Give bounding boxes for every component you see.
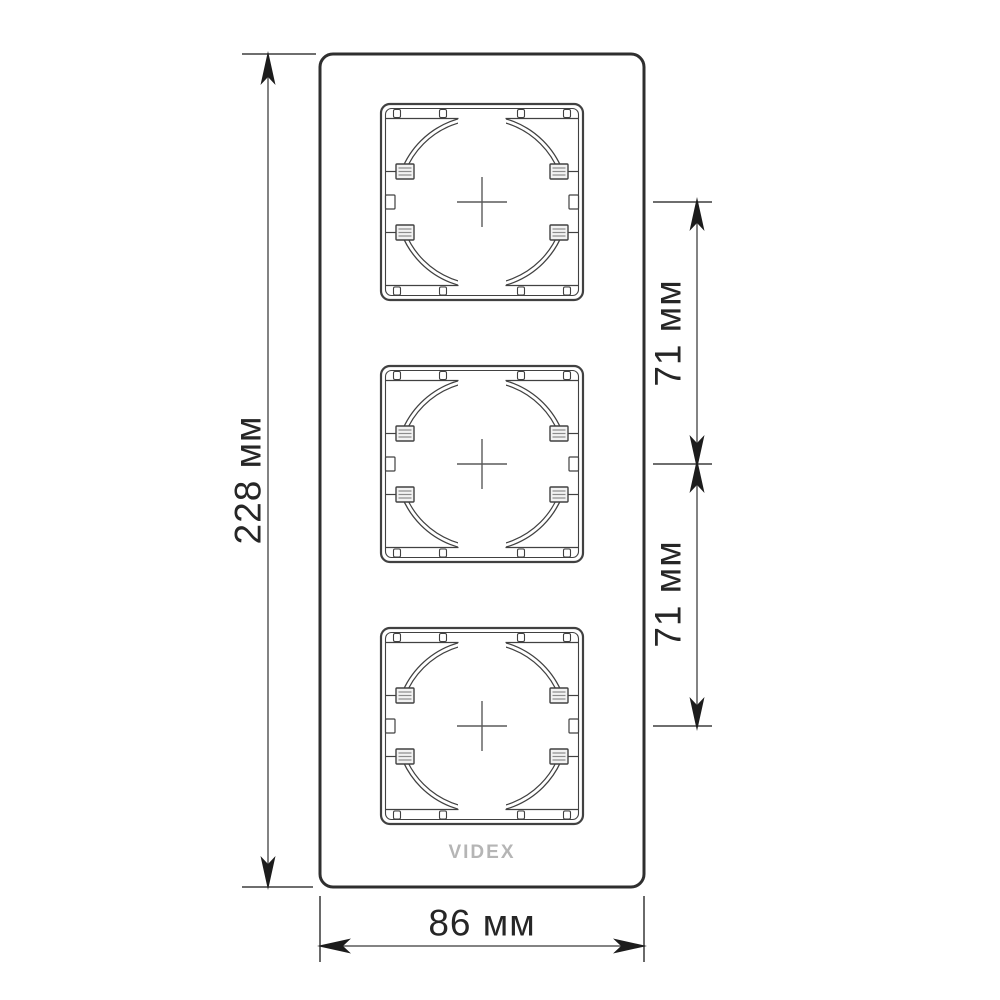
slot-hole bbox=[518, 110, 525, 118]
circle-gap-mask bbox=[458, 636, 506, 648]
slot-hole bbox=[518, 811, 525, 819]
socket-opening-2 bbox=[381, 366, 583, 562]
slot-hole bbox=[394, 287, 401, 295]
slot-hole bbox=[394, 110, 401, 118]
slot-hole bbox=[564, 372, 571, 380]
slot-hole bbox=[518, 549, 525, 557]
slot-hole bbox=[564, 110, 571, 118]
spacing-upper-dimension-label: 71 мм bbox=[650, 279, 687, 386]
circle-gap-mask bbox=[458, 374, 506, 386]
slot-hole bbox=[518, 372, 525, 380]
spacing-lower-dimension-label: 71 мм bbox=[650, 540, 687, 647]
slot-hole bbox=[564, 287, 571, 295]
side-notch bbox=[386, 457, 396, 471]
slot-hole bbox=[518, 287, 525, 295]
circle-gap-mask bbox=[458, 112, 506, 124]
slot-hole bbox=[440, 549, 447, 557]
side-notch bbox=[569, 719, 579, 733]
height-dimension-label: 228 мм bbox=[230, 416, 267, 545]
slot-hole bbox=[440, 287, 447, 295]
side-notch bbox=[386, 719, 396, 733]
circle-gap-mask bbox=[458, 542, 506, 554]
circle-gap-mask bbox=[458, 804, 506, 816]
slot-hole bbox=[440, 110, 447, 118]
socket-opening-3 bbox=[381, 628, 583, 824]
slot-hole bbox=[394, 634, 401, 642]
socket-opening-1 bbox=[381, 104, 583, 300]
brand-logo: VIDEX bbox=[448, 842, 515, 864]
slot-hole bbox=[394, 811, 401, 819]
dimension-drawing: 228 мм 71 мм 71 мм 86 мм VIDEX bbox=[0, 0, 1000, 1000]
circle-gap-mask bbox=[458, 280, 506, 292]
slot-hole bbox=[564, 549, 571, 557]
slot-hole bbox=[440, 372, 447, 380]
slot-hole bbox=[564, 634, 571, 642]
side-notch bbox=[569, 457, 579, 471]
slot-hole bbox=[564, 811, 571, 819]
slot-hole bbox=[440, 811, 447, 819]
slot-hole bbox=[394, 549, 401, 557]
side-notch bbox=[569, 195, 579, 209]
width-dimension-label: 86 мм bbox=[428, 905, 535, 942]
slot-hole bbox=[518, 634, 525, 642]
side-notch bbox=[386, 195, 396, 209]
slot-hole bbox=[440, 634, 447, 642]
slot-hole bbox=[394, 372, 401, 380]
